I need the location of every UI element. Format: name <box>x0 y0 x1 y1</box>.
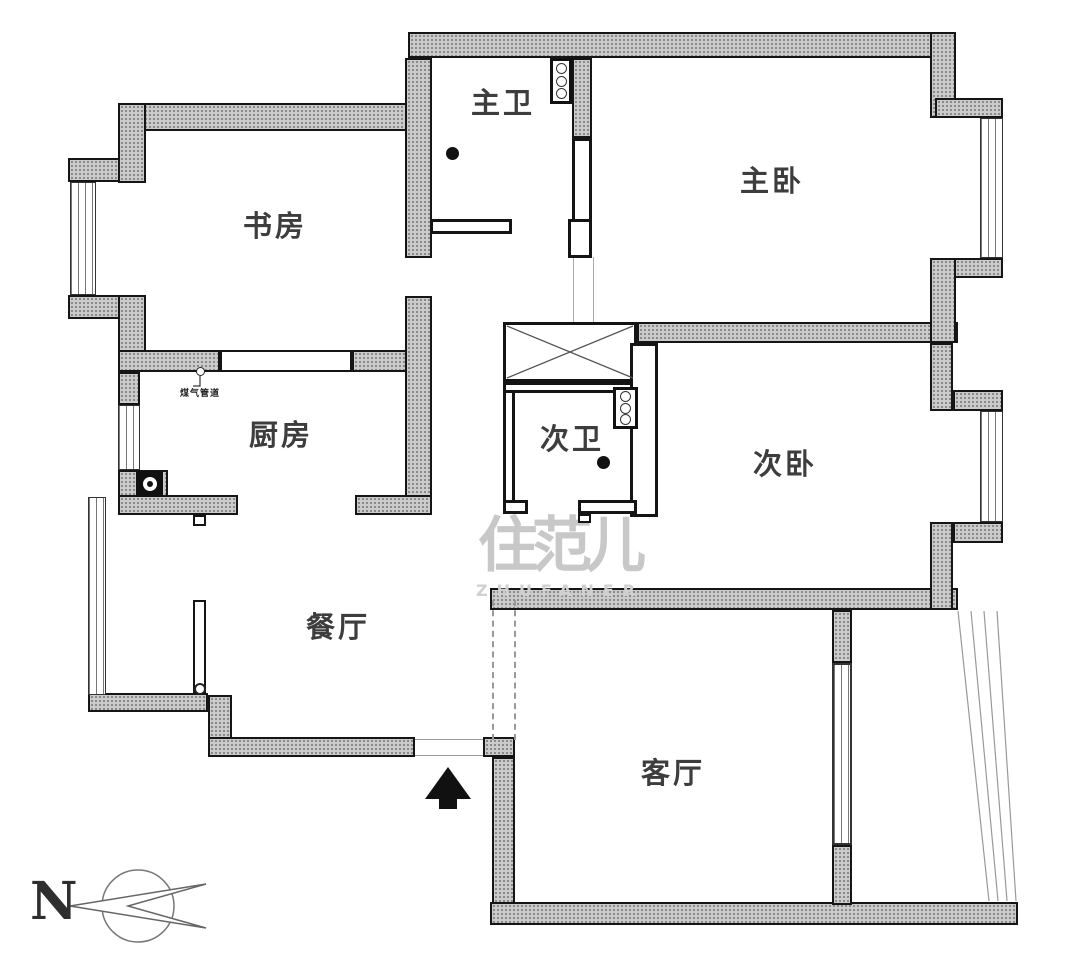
floor-drain-icon <box>446 147 459 160</box>
bay-window <box>980 411 1003 522</box>
wall-segment <box>352 350 407 372</box>
partition-wall <box>578 500 637 514</box>
window <box>118 405 140 470</box>
floor-drain-icon <box>597 456 610 469</box>
partition-wall <box>503 500 528 514</box>
wall-segment <box>832 845 852 905</box>
door-stop <box>193 515 206 526</box>
dashed-boundary <box>514 600 516 740</box>
slanted-balcony-glazing <box>958 611 1016 901</box>
floor-plan: 住范儿 <box>0 0 1080 968</box>
wall-segment <box>572 58 592 138</box>
room-label-second-bedroom: 次卧 <box>725 450 845 479</box>
room-label-master-bath: 主卫 <box>443 89 563 118</box>
partition-wall <box>630 343 658 517</box>
duct-shaft <box>503 322 637 382</box>
wall-segment <box>88 693 208 712</box>
wall-segment <box>355 495 432 515</box>
wall-segment <box>408 32 952 58</box>
partition-wall <box>430 219 512 234</box>
wall-segment <box>483 737 515 757</box>
wall-segment <box>118 350 220 372</box>
wall-segment <box>118 295 146 352</box>
watermark-letters: ZHUFANER <box>476 583 644 599</box>
room-label-second-bath: 次卫 <box>512 425 632 454</box>
partition-wall <box>572 138 592 222</box>
wall-segment <box>637 322 958 343</box>
wall-segment <box>68 158 120 182</box>
dashed-boundary <box>492 600 494 740</box>
door-stop <box>578 514 591 523</box>
wall-segment <box>208 737 415 757</box>
room-label-dining: 餐厅 <box>278 613 398 642</box>
gas-pipe-icon <box>196 367 205 376</box>
balcony-window <box>88 497 106 695</box>
room-label-living: 客厅 <box>613 759 733 788</box>
wall-segment <box>492 757 515 905</box>
radiator-icon <box>613 387 638 429</box>
wall-segment <box>832 610 852 663</box>
wall-segment <box>118 372 140 405</box>
gas-pipe-leader-line <box>193 376 200 386</box>
opening-line <box>573 257 574 322</box>
wall-segment <box>118 103 432 131</box>
door-hinge-icon <box>194 683 206 695</box>
entrance-threshold <box>415 739 483 756</box>
wall-segment <box>490 902 1018 925</box>
room-label-study: 书房 <box>215 212 335 241</box>
door-jamb <box>193 600 206 693</box>
wall-segment <box>68 295 120 319</box>
room-label-master-bedroom: 主卧 <box>712 167 832 196</box>
bay-window <box>980 118 1003 258</box>
north-label: N <box>30 876 78 928</box>
flue-duct-icon <box>136 471 163 497</box>
partition-wall <box>568 219 592 258</box>
wall-segment <box>953 522 1003 543</box>
gas-pipe-label: 煤气管道 <box>180 386 220 399</box>
window <box>70 182 96 295</box>
room-label-kitchen: 厨房 <box>221 421 341 450</box>
wall-segment <box>935 98 1003 118</box>
wall-segment <box>953 390 1003 411</box>
partition-window <box>832 663 852 845</box>
wall-segment <box>405 296 432 515</box>
opening-line <box>593 257 594 322</box>
wall-segment <box>930 258 956 343</box>
wall-segment <box>930 343 953 411</box>
pass-through-opening <box>220 350 352 372</box>
wall-segment <box>118 103 146 183</box>
entrance-arrow-icon <box>425 767 471 809</box>
wall-segment <box>405 58 432 258</box>
wall-segment <box>930 522 953 610</box>
watermark-text: 住范儿 <box>478 516 640 576</box>
compass-icon <box>70 870 206 942</box>
wall-segment <box>118 495 238 515</box>
